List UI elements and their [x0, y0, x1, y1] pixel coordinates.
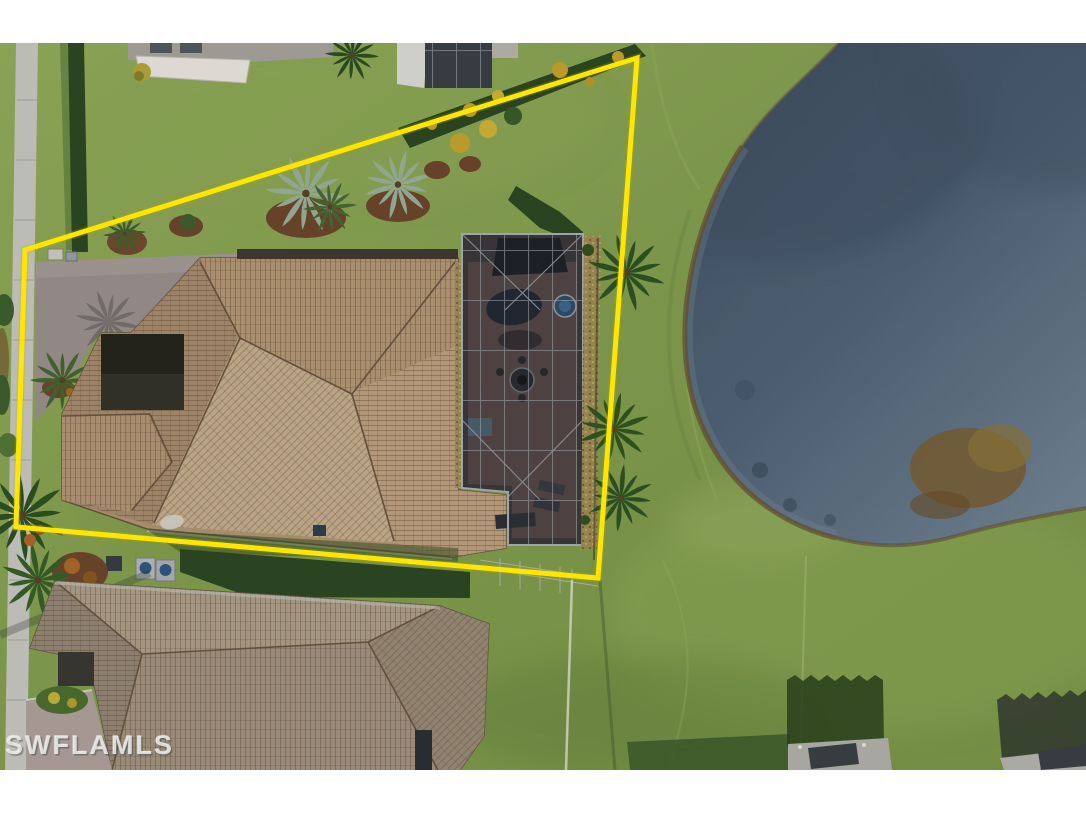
top-white-band: [0, 0, 1086, 43]
aerial-photo: [0, 0, 1086, 814]
photo-grain: [0, 43, 1086, 770]
mls-watermark: SWFLAMLS: [5, 730, 174, 761]
bottom-white-band: [0, 770, 1086, 814]
aerial-photo-page: SWFLAMLS: [0, 0, 1086, 814]
